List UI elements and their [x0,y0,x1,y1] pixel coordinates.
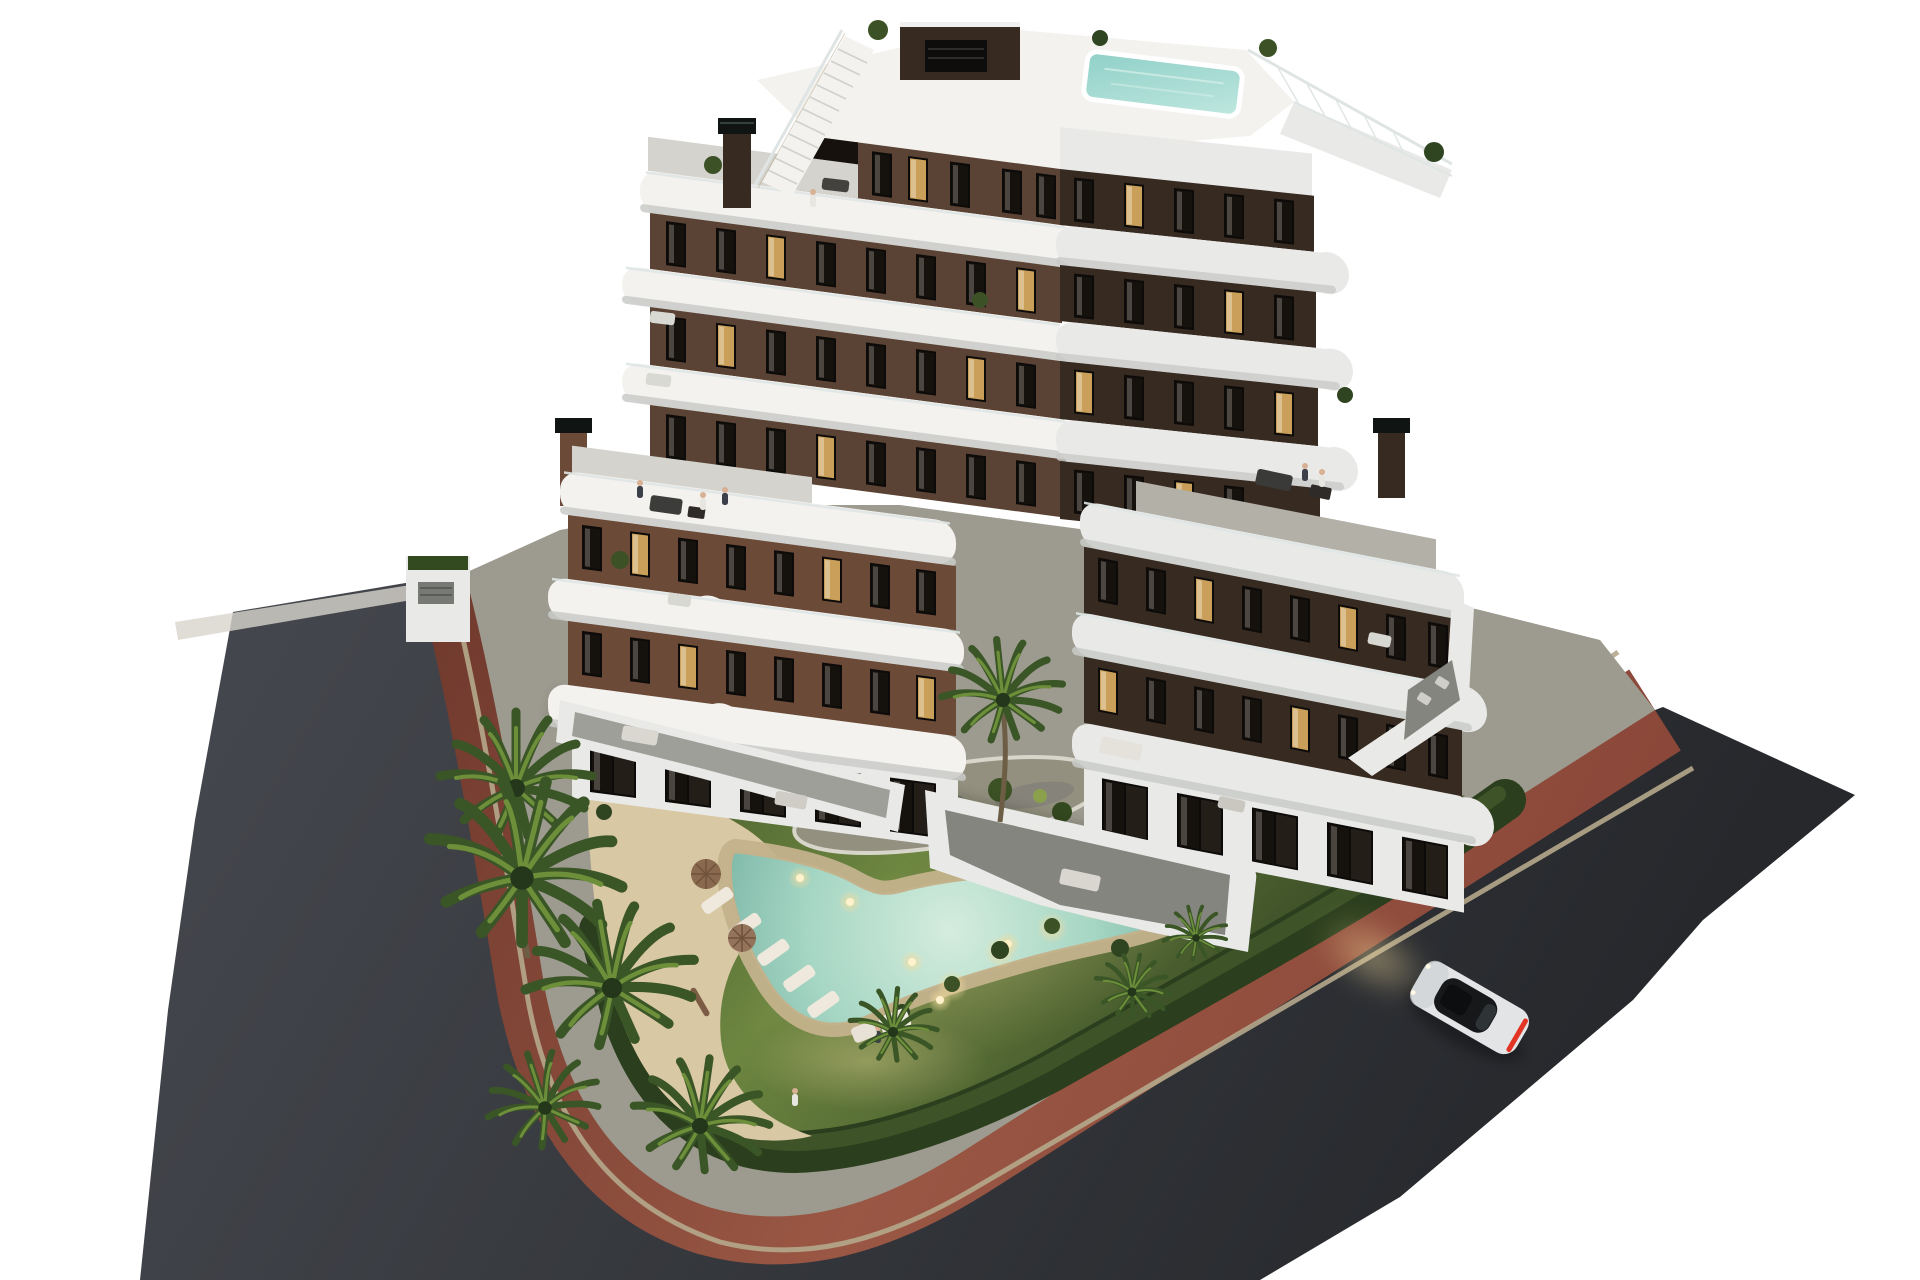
person [810,189,816,207]
person [700,492,706,510]
person [637,480,643,498]
person [1302,463,1308,481]
person [722,487,728,505]
chimney [1373,418,1410,498]
penthouse [900,22,1020,80]
person [1319,469,1325,487]
render-canvas [0,0,1920,1280]
architectural-render [0,0,1920,1280]
garage-block [406,556,470,642]
person [792,1088,798,1106]
chimney [718,118,756,208]
